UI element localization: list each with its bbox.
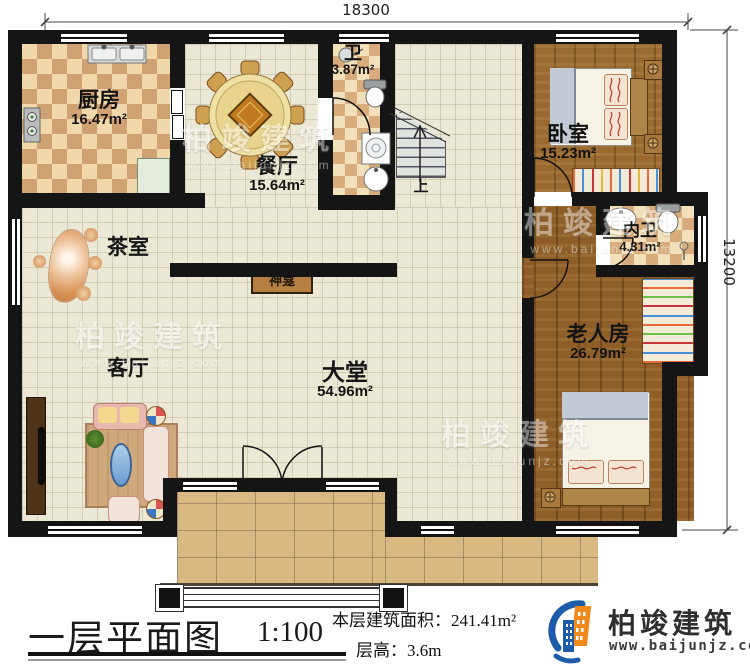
wall (170, 44, 185, 88)
room-name: 大堂 (317, 360, 373, 384)
suite-nook-floor (534, 206, 596, 277)
dining-label: 餐厅 15.64m² (249, 156, 305, 194)
window (208, 31, 285, 43)
room-area: 16.47m² (71, 112, 127, 128)
tea-stool (33, 255, 46, 268)
elder-pillow (568, 460, 604, 484)
side-table (146, 406, 166, 426)
company-logo-icon (548, 598, 604, 664)
ensuite-label: 内卫 4.31m² (619, 222, 660, 253)
window (695, 215, 707, 263)
elder-headboard (562, 488, 650, 506)
sofa-cushion (98, 407, 117, 423)
wall (318, 195, 395, 210)
tea-stool (76, 286, 91, 301)
room-name: 厨房 (71, 90, 127, 112)
elder-door-threshold (522, 258, 534, 298)
room-area: 3.87m² (332, 63, 375, 77)
room-name: 老人房 (567, 324, 630, 346)
porch-edge (160, 583, 598, 586)
title-underline-thick (28, 652, 346, 656)
bedroom-pillow (604, 74, 628, 106)
wall (522, 44, 534, 258)
coffee-table (110, 443, 132, 487)
company-website: www.baijunjz.com (609, 638, 750, 654)
floor-area-label: 本层建筑面积： (332, 611, 451, 630)
window (60, 31, 128, 43)
elder-wardrobe (642, 278, 694, 364)
porch-right (385, 537, 598, 585)
kitchen-sliding-door (171, 90, 183, 114)
elder-room-label: 老人房 26.79m² (567, 324, 630, 362)
room-area: 15.23m² (540, 146, 596, 162)
wall (596, 206, 610, 235)
wall (662, 362, 677, 537)
wall (163, 492, 177, 537)
tv-screen (38, 427, 45, 485)
window (47, 523, 143, 535)
room-area: 54.96m² (317, 384, 373, 400)
floor-height-label: 层高： (356, 641, 407, 660)
stairs-up-label: 上 (413, 179, 428, 195)
room-name: 内卫 (619, 222, 660, 240)
wall (8, 193, 205, 208)
floor-area-value: 241.41m² (451, 611, 516, 630)
plant (86, 430, 104, 448)
window (325, 479, 380, 491)
bedroom-wardrobe (572, 168, 660, 194)
window (9, 218, 21, 306)
wall (662, 30, 677, 206)
room-area: 4.31m² (619, 240, 660, 254)
nightstand (644, 134, 664, 154)
tea-stool (88, 256, 102, 270)
room-name: 卫 (332, 44, 375, 63)
wall (572, 192, 708, 206)
window (182, 479, 238, 491)
porch-steps (155, 587, 408, 608)
company-name: 柏竣建筑 (608, 602, 736, 642)
kitchen-label: 厨房 16.47m² (71, 90, 127, 128)
nightstand (541, 488, 561, 508)
floor-area-line: 本层建筑面积：241.41m² (332, 606, 516, 631)
living-room-label: 客厅 (107, 358, 149, 380)
window (555, 31, 640, 43)
wall (596, 265, 708, 277)
wall (170, 140, 185, 193)
fridge (137, 158, 170, 194)
bedroom-label: 卧室 15.23m² (540, 124, 596, 162)
tea-room-label: 茶室 (107, 237, 149, 259)
bedroom-headboard (630, 78, 648, 136)
window (555, 523, 640, 535)
elder-bed-blanket (562, 392, 648, 420)
hall-label: 大堂 54.96m² (317, 360, 373, 400)
nightstand (644, 60, 664, 80)
wall (522, 298, 534, 521)
room-area: 26.79m² (567, 346, 630, 362)
floor-height-value: 3.6m (407, 641, 441, 660)
window (420, 523, 455, 535)
room-area: 15.64m² (249, 178, 305, 194)
bedroom-pillow (604, 108, 628, 140)
sofa-cushion (120, 407, 139, 423)
room-name: 卧室 (540, 124, 596, 146)
room-name: 餐厅 (249, 156, 305, 178)
plan-scale: 1:100 (257, 616, 323, 649)
floor-plan-page: 神龛 (0, 0, 750, 670)
kitchen-sliding-door (172, 115, 184, 139)
bath-label: 卫 3.87m² (332, 44, 375, 77)
wall (380, 44, 395, 210)
armchair-bottom (108, 496, 140, 523)
elder-pillow (608, 460, 644, 484)
tea-stool (84, 228, 98, 242)
floor-height-line: 层高：3.6m (356, 636, 441, 661)
dimension-top: 18300 (336, 1, 396, 19)
window (338, 31, 390, 43)
wall (170, 263, 397, 277)
dimension-right: 13200 (718, 234, 738, 290)
porch-main (177, 492, 385, 585)
title-underline-thin (28, 659, 346, 661)
